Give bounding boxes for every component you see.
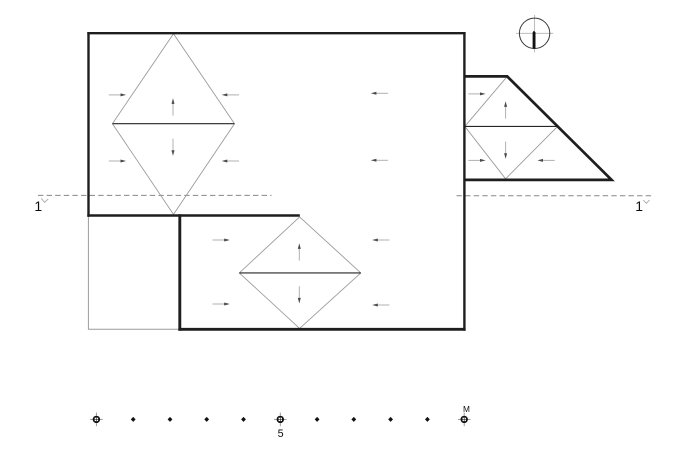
svg-text:M: M xyxy=(463,404,470,414)
svg-text:1: 1 xyxy=(635,198,643,214)
svg-text:1: 1 xyxy=(34,198,42,214)
svg-text:5: 5 xyxy=(278,428,284,440)
